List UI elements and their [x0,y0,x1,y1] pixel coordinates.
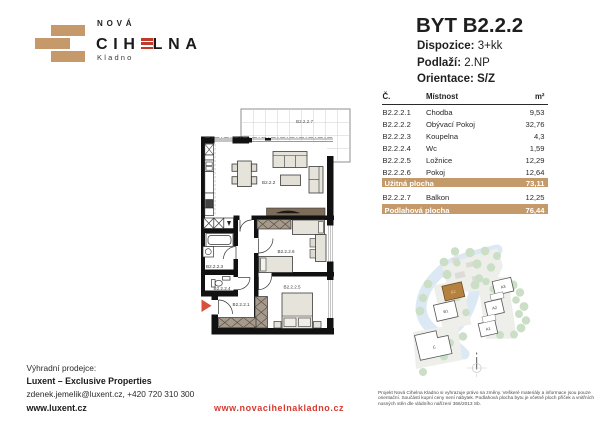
svg-text:B2.2.2.1: B2.2.2.1 [233,302,251,307]
svg-text:B2.2.2.3: B2.2.2.3 [206,264,224,269]
svg-text:B2.2.2.6: B2.2.2.6 [278,249,296,254]
svg-text:B2.2.2.5: B2.2.2.5 [284,285,302,290]
svg-text:B2.2.2.4: B2.2.2.4 [214,286,232,291]
svg-text:B2.2.2.7: B2.2.2.7 [296,119,314,124]
svg-text:B2.2.2: B2.2.2 [262,180,276,185]
